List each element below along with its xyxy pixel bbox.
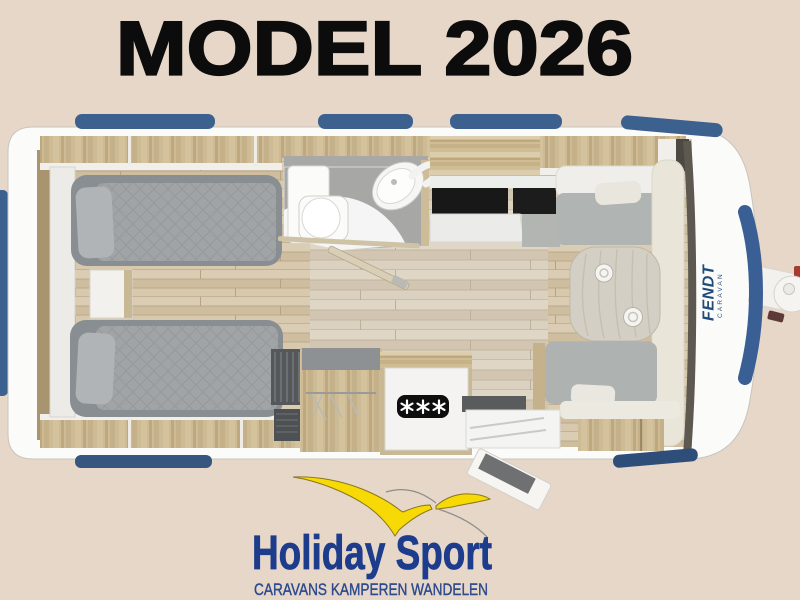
- svg-text:FENDT: FENDT: [701, 264, 718, 321]
- svg-text:Holiday Sport: Holiday Sport: [252, 527, 492, 580]
- svg-text:CARAVANS KAMPEREN WANDELEN: CARAVANS KAMPEREN WANDELEN: [254, 581, 488, 599]
- svg-text:CARAVAN: CARAVAN: [717, 272, 724, 318]
- svg-text:MODEL 2026: MODEL 2026: [116, 7, 633, 92]
